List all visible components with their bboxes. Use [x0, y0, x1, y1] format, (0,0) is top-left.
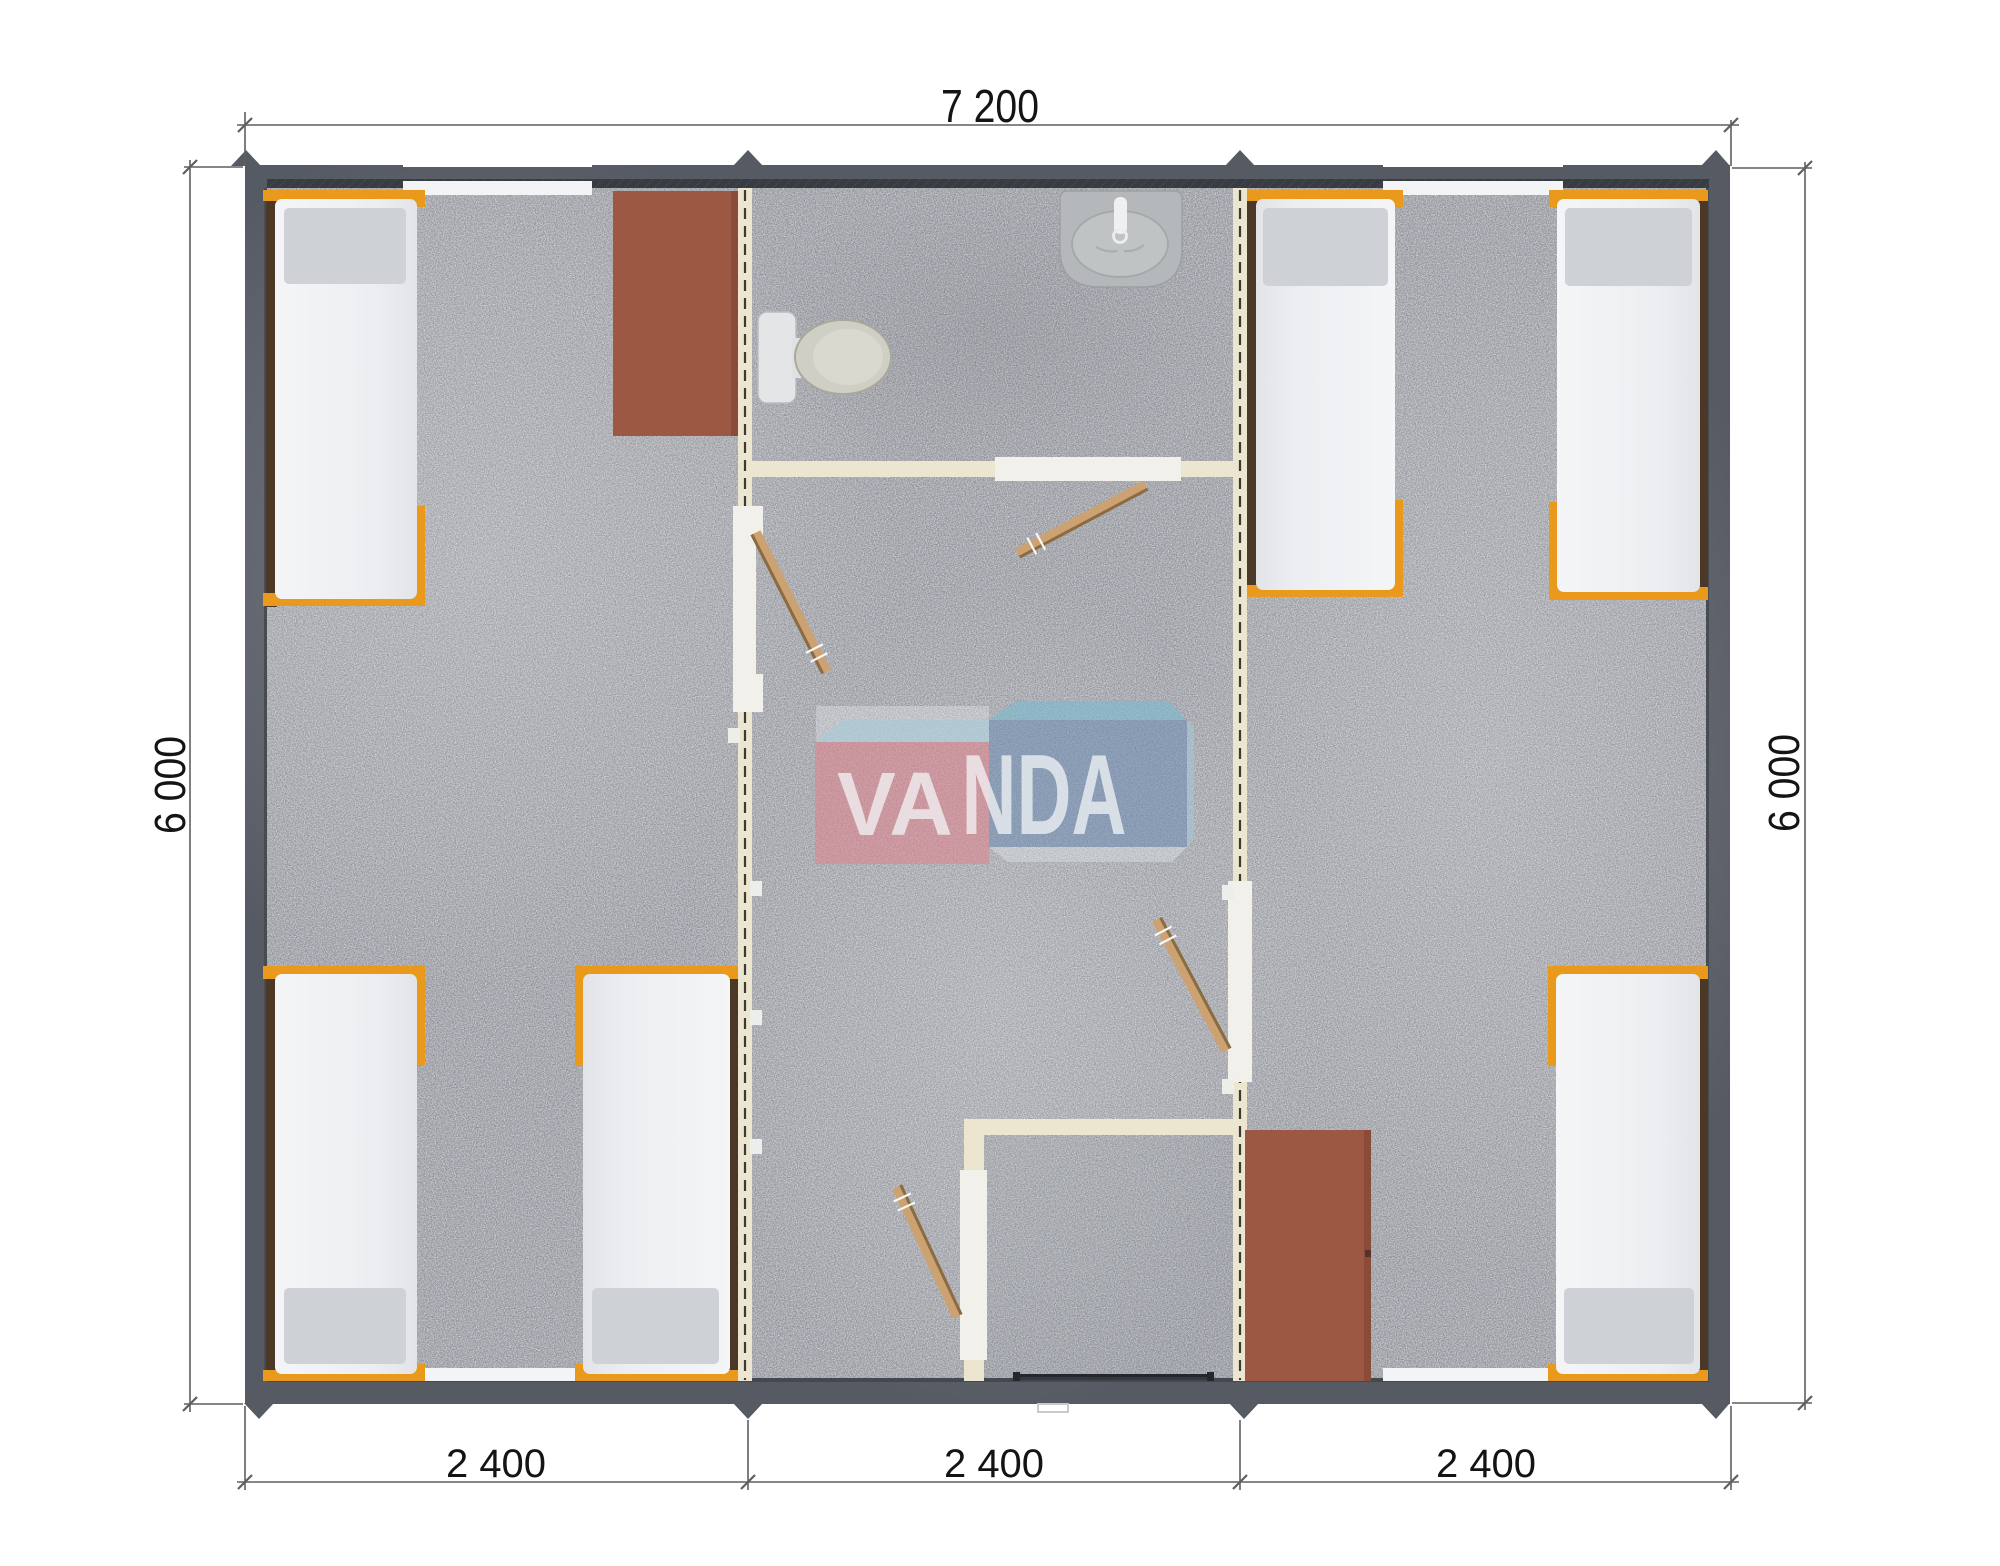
svg-text:NDA: NDA [962, 732, 1127, 859]
svg-text:7 200: 7 200 [941, 80, 1039, 132]
svg-text:6 000: 6 000 [146, 736, 195, 834]
svg-text:2 400: 2 400 [944, 1442, 1044, 1486]
svg-text:6 000: 6 000 [1760, 734, 1809, 832]
svg-text:2 400: 2 400 [446, 1442, 546, 1486]
svg-text:VA: VA [837, 755, 953, 855]
svg-text:2 400: 2 400 [1436, 1442, 1536, 1486]
